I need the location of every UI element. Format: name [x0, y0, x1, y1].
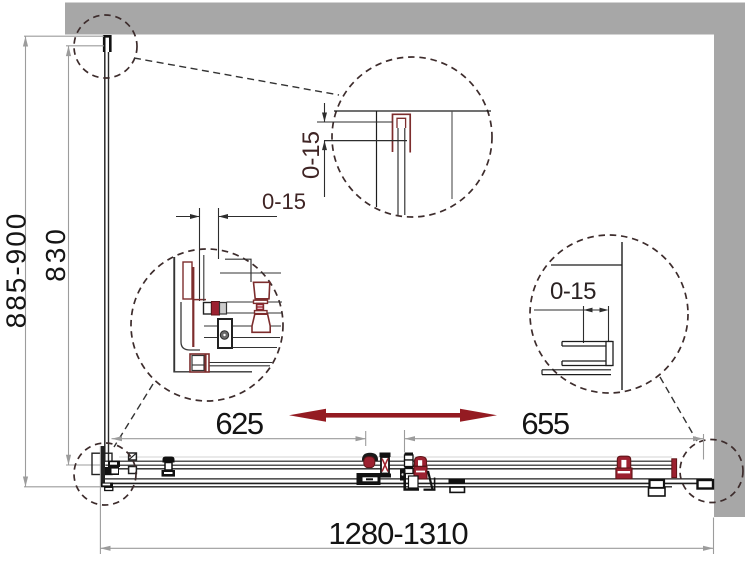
svg-text:0-15: 0-15 — [298, 131, 325, 179]
svg-text:625: 625 — [215, 406, 262, 441]
svg-text:1280-1310: 1280-1310 — [328, 516, 468, 551]
svg-text:885-900: 885-900 — [1, 212, 32, 329]
svg-text:0-15: 0-15 — [550, 278, 596, 305]
svg-text:830: 830 — [40, 226, 71, 282]
svg-text:0-15: 0-15 — [262, 189, 306, 214]
svg-text:655: 655 — [521, 406, 568, 441]
